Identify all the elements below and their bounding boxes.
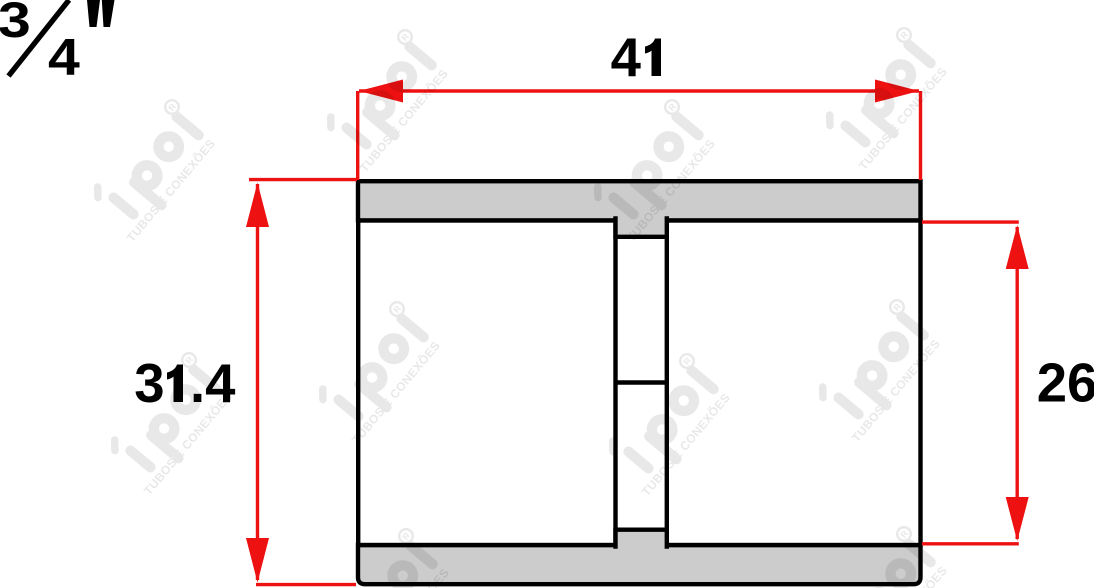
svg-text:4: 4 — [48, 28, 80, 86]
svg-text:26: 26 — [1037, 353, 1094, 414]
svg-text:4: 4 — [611, 27, 642, 88]
svg-text:3: 3 — [0, 0, 31, 48]
svg-text:3: 3 — [134, 353, 164, 414]
